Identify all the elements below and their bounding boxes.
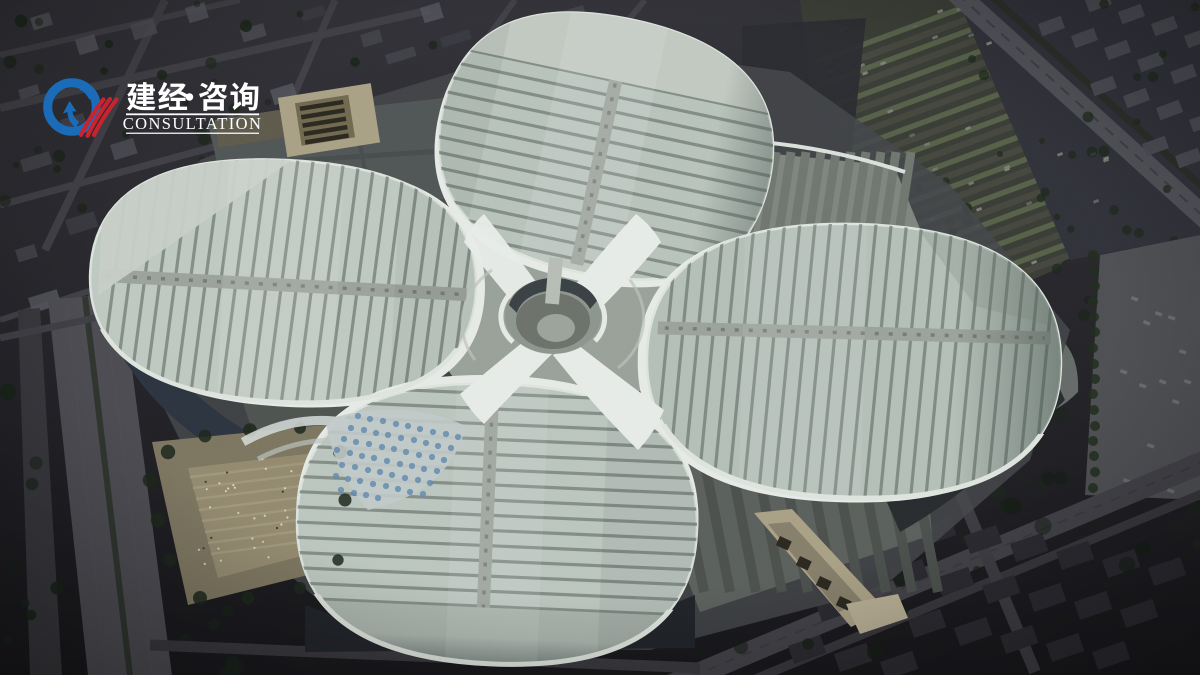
svg-text:CONSULTATION: CONSULTATION	[123, 114, 263, 133]
